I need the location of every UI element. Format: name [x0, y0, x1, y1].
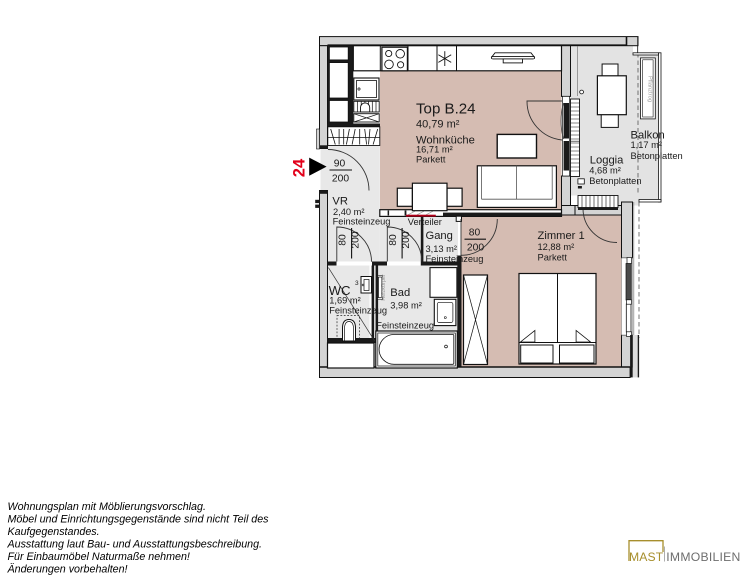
svg-text:Pflanztrog: Pflanztrog	[647, 76, 653, 102]
svg-text:200: 200	[350, 231, 361, 248]
svg-text:VR: VR	[332, 195, 348, 207]
svg-text:Änderungen vorbehalten!: Änderungen vorbehalten!	[7, 563, 128, 575]
svg-text:Ausstattung laut Bau- und Auss: Ausstattung laut Bau- und Ausstattungsbe…	[7, 538, 263, 550]
svg-text:Feinsteinzeug: Feinsteinzeug	[333, 216, 391, 226]
svg-text:40,79 m²: 40,79 m²	[416, 119, 460, 131]
svg-text:Parkett: Parkett	[416, 154, 446, 164]
svg-text:16,71 m²: 16,71 m²	[416, 145, 453, 155]
svg-text:1,17 m²: 1,17 m²	[631, 140, 663, 150]
svg-text:Feinsteinzeug: Feinsteinzeug	[376, 320, 434, 330]
svg-text:24: 24	[291, 158, 309, 177]
svg-text:80: 80	[388, 234, 399, 246]
svg-text:3: 3	[355, 280, 359, 287]
svg-text:90: 90	[334, 159, 346, 170]
svg-text:Wohnungsplan mit Möblierungsvo: Wohnungsplan mit Möblierungsvorschlag.	[8, 501, 206, 513]
svg-text:Betonplatten: Betonplatten	[589, 176, 641, 186]
svg-text:3,98 m²: 3,98 m²	[390, 301, 422, 311]
svg-text:12,88 m²: 12,88 m²	[538, 242, 575, 252]
svg-text:Bad: Bad	[390, 287, 410, 299]
svg-text:2,40 m²: 2,40 m²	[333, 207, 365, 217]
svg-text:Parkett: Parkett	[538, 252, 568, 262]
svg-text:Top B.24: Top B.24	[416, 101, 476, 118]
svg-text:IMMOBILIEN: IMMOBILIEN	[666, 550, 740, 564]
svg-text:3,13 m²: 3,13 m²	[426, 244, 458, 254]
svg-text:Heizkörper: Heizkörper	[381, 274, 387, 301]
svg-text:4,68 m²: 4,68 m²	[589, 165, 621, 175]
svg-text:Möbel und Einrichtungsgegenstä: Möbel und Einrichtungsgegenstände sind n…	[8, 513, 270, 525]
svg-text:80: 80	[337, 234, 348, 246]
svg-text:200: 200	[401, 231, 412, 248]
svg-text:MAST: MAST	[629, 550, 664, 564]
svg-text:Für Einbaumöbel Naturmaße nehm: Für Einbaumöbel Naturmaße nehmen!	[8, 551, 190, 563]
svg-text:200: 200	[332, 173, 349, 184]
svg-text:Verteiler: Verteiler	[408, 217, 442, 227]
svg-text:80: 80	[469, 228, 481, 239]
svg-text:Betonplatten: Betonplatten	[631, 151, 683, 161]
svg-text:Zimmer 1: Zimmer 1	[538, 230, 585, 242]
svg-text:1,69 m²: 1,69 m²	[329, 295, 361, 305]
svg-text:Kaufgegenstandes.: Kaufgegenstandes.	[8, 526, 100, 538]
svg-text:200: 200	[467, 243, 484, 254]
svg-text:Feinsteinzeug: Feinsteinzeug	[426, 254, 484, 264]
svg-text:Gang: Gang	[426, 230, 453, 242]
svg-text:Feinsteinzeug: Feinsteinzeug	[329, 306, 387, 316]
